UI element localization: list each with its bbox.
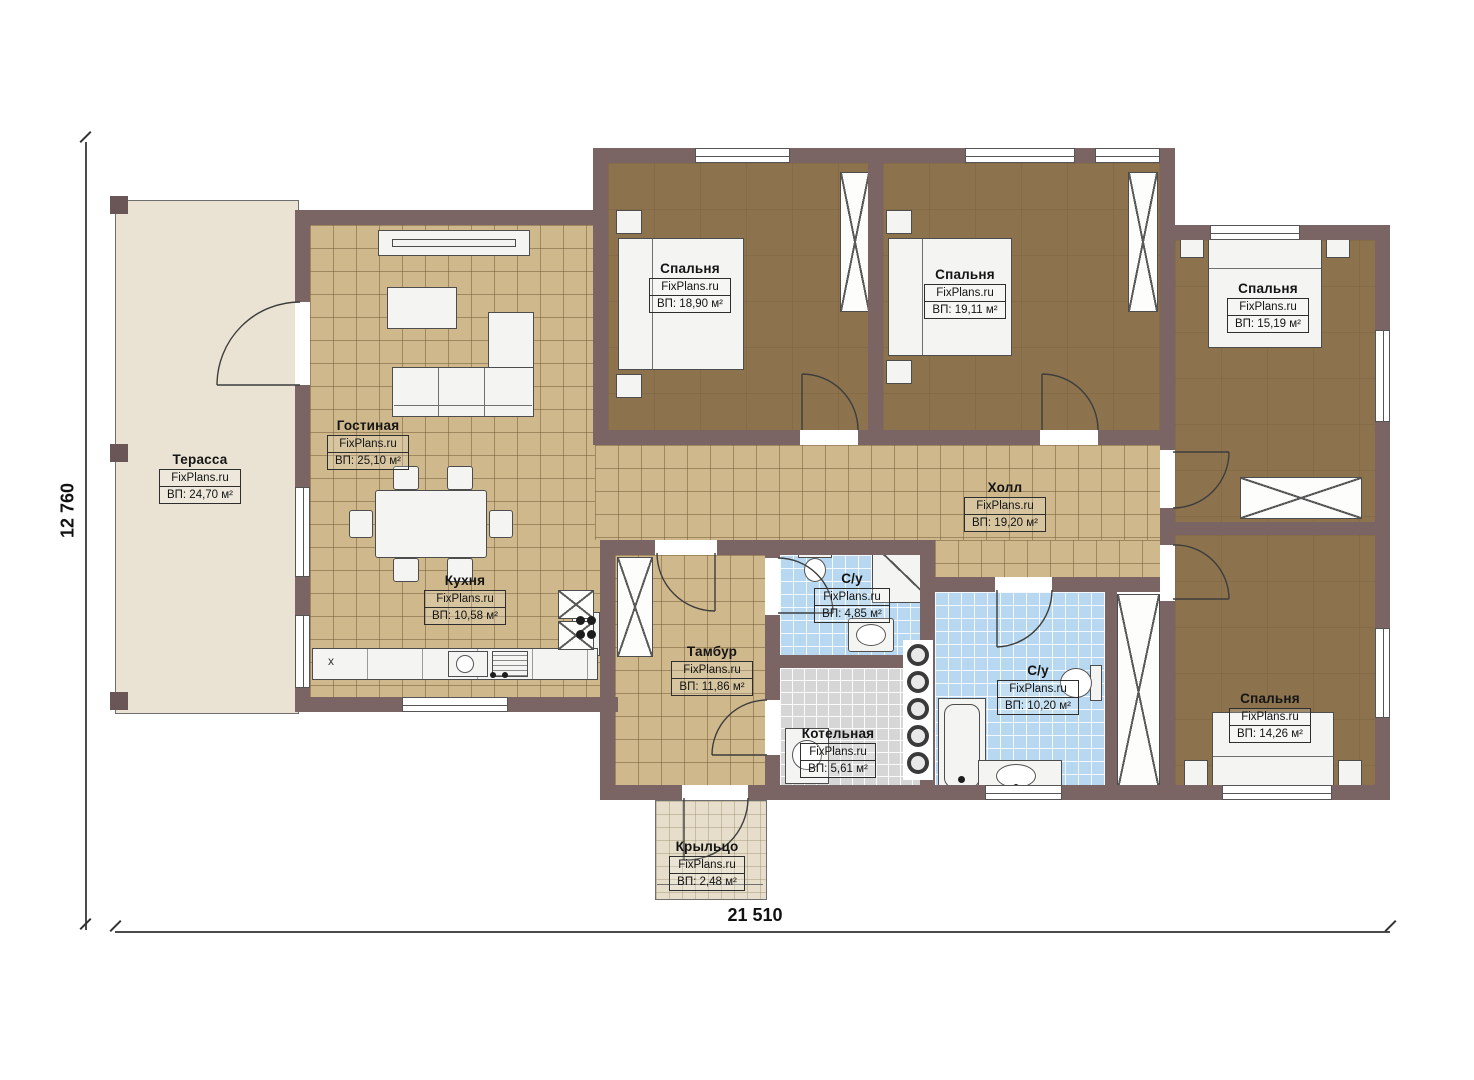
bathtub-drain: [958, 776, 965, 783]
room-info-box: FixPlans.ru ВП: 11,86 м²: [671, 661, 752, 696]
window: [965, 148, 1075, 163]
room-area: ВП: 19,20 м²: [965, 515, 1045, 531]
dining-chair: [489, 510, 513, 538]
room-info-box: FixPlans.ru ВП: 4,85 м²: [814, 588, 890, 623]
wall: [295, 210, 608, 225]
sink-drainer: [492, 651, 528, 677]
window: [402, 697, 508, 712]
watermark: FixPlans.ru: [815, 589, 889, 606]
room-area: ВП: 10,58 м²: [425, 608, 505, 624]
blanket-line: [1213, 756, 1333, 757]
room-label-boiler: Котельная FixPlans.ru ВП: 5,61 м²: [783, 726, 893, 778]
room-area: ВП: 19,11 м²: [925, 302, 1004, 318]
tv: [392, 239, 516, 247]
door-opening-terrace: [295, 302, 310, 385]
nightstand: [886, 360, 912, 384]
dining-chair: [447, 466, 473, 490]
hob-mark: x: [328, 654, 334, 668]
room-info-box: FixPlans.ru ВП: 19,11 м²: [924, 284, 1005, 319]
nightstand: [886, 210, 912, 234]
faucet-dot: [502, 672, 508, 678]
room-label-wc1: С/у FixPlans.ru ВП: 4,85 м²: [797, 571, 907, 623]
room-name: Спальня: [635, 261, 745, 276]
room-area: ВП: 18,90 м²: [650, 296, 730, 312]
window: [1210, 225, 1300, 240]
room-info-box: FixPlans.ru ВП: 18,90 м²: [649, 278, 731, 313]
kitchen-fridge: [558, 590, 594, 619]
room-area: ВП: 15,19 м²: [1228, 316, 1308, 332]
sofa-base-line: [394, 405, 532, 406]
room-info-box: FixPlans.ru ВП: 2,48 м²: [669, 856, 745, 891]
collector-ring: [907, 698, 929, 720]
burner: [587, 616, 596, 625]
watermark: FixPlans.ru: [998, 681, 1078, 698]
room-info-box: FixPlans.ru ВП: 25,10 м²: [327, 435, 409, 470]
hall-floor: [595, 445, 1160, 540]
nightstand: [616, 374, 642, 398]
collector-ring: [907, 671, 929, 693]
dining-table: [375, 490, 487, 558]
door-opening-bedroom1: [800, 430, 858, 445]
collector-ring: [907, 725, 929, 747]
room-name: Холл: [950, 480, 1060, 495]
room-name: Крыльцо: [652, 839, 762, 854]
blanket-line: [1209, 268, 1321, 269]
door-opening-tambur: [655, 540, 717, 555]
room-label-terrace: Терасса FixPlans.ru ВП: 24,70 м²: [145, 452, 255, 504]
nightstand: [616, 210, 642, 234]
watermark: FixPlans.ru: [425, 591, 505, 608]
watermark: FixPlans.ru: [328, 436, 408, 453]
nightstand: [1184, 760, 1208, 786]
room-info-box: FixPlans.ru ВП: 24,70 м²: [159, 469, 241, 504]
dimension-width-label: 21 510: [690, 905, 820, 926]
burner: [576, 630, 585, 639]
window: [1375, 330, 1390, 422]
dimension-height-label: 12 760: [58, 466, 79, 556]
wall: [868, 163, 883, 432]
wall: [1105, 592, 1117, 790]
room-area: ВП: 11,86 м²: [672, 679, 751, 695]
watermark: FixPlans.ru: [672, 662, 751, 679]
room-name: Тамбур: [657, 644, 767, 659]
room-label-porch: Крыльцо FixPlans.ru ВП: 2,48 м²: [652, 839, 762, 891]
sofa-seat: [392, 367, 534, 417]
watermark: FixPlans.ru: [1230, 709, 1310, 726]
room-name: Терасса: [145, 452, 255, 467]
door-opening-bedroom2: [1040, 430, 1098, 445]
room-label-wc2: С/у FixPlans.ru ВП: 10,20 м²: [983, 663, 1093, 715]
window: [695, 148, 790, 163]
room-info-box: FixPlans.ru ВП: 10,20 м²: [997, 680, 1079, 715]
room-label-bedroom4: Спальня FixPlans.ru ВП: 14,26 м²: [1215, 691, 1325, 743]
door-opening-wc1: [765, 558, 780, 615]
collector-ring: [907, 752, 929, 774]
collector-ring: [907, 644, 929, 666]
watermark: FixPlans.ru: [801, 744, 875, 761]
window: [1375, 628, 1390, 718]
door-opening-wc2: [995, 577, 1052, 592]
room-name: Спальня: [910, 267, 1020, 282]
room-name: Гостиная: [313, 418, 423, 433]
room-area: ВП: 14,26 м²: [1230, 726, 1310, 742]
watermark: FixPlans.ru: [670, 857, 744, 874]
tambur-closet: [617, 557, 653, 657]
room-info-box: FixPlans.ru ВП: 19,20 м²: [964, 497, 1046, 532]
room-area: ВП: 24,70 м²: [160, 487, 240, 503]
room-info-box: FixPlans.ru ВП: 5,61 м²: [800, 743, 876, 778]
room-name: Спальня: [1213, 281, 1323, 296]
washbasin-bowl: [856, 624, 886, 646]
dimension-line-bottom: [115, 931, 1390, 933]
sofa-cushion-line: [438, 368, 439, 416]
room-label-bedroom2: Спальня FixPlans.ru ВП: 19,11 м²: [910, 267, 1020, 319]
room-info-box: FixPlans.ru ВП: 10,58 м²: [424, 590, 506, 625]
room-label-hall: Холл FixPlans.ru ВП: 19,20 м²: [950, 480, 1060, 532]
faucet-dot: [490, 672, 496, 678]
watermark: FixPlans.ru: [965, 498, 1045, 515]
room-area: ВП: 4,85 м²: [815, 606, 889, 622]
wall: [593, 148, 608, 445]
window: [1222, 785, 1332, 800]
room-label-tambur: Тамбур FixPlans.ru ВП: 11,86 м²: [657, 644, 767, 696]
room-info-box: FixPlans.ru ВП: 15,19 м²: [1227, 298, 1309, 333]
wall: [593, 148, 1175, 163]
door-opening-bedroom3: [1160, 450, 1175, 508]
burner: [576, 616, 585, 625]
room-name: С/у: [797, 571, 907, 586]
sofa-cushion-line: [484, 368, 485, 416]
window: [295, 487, 310, 577]
watermark: FixPlans.ru: [925, 285, 1004, 302]
watermark: FixPlans.ru: [1228, 299, 1308, 316]
wardrobe: [840, 172, 870, 312]
room-label-kitchen: Кухня FixPlans.ru ВП: 10,58 м²: [410, 573, 520, 625]
coffee-table: [387, 287, 457, 329]
terrace-post: [110, 444, 128, 462]
built-in-closet: [1117, 594, 1160, 790]
room-name: Спальня: [1215, 691, 1325, 706]
nightstand: [1338, 760, 1362, 786]
room-name: Котельная: [783, 726, 893, 741]
terrace-post: [110, 196, 128, 214]
room-info-box: FixPlans.ru ВП: 14,26 м²: [1229, 708, 1311, 743]
room-area: ВП: 10,20 м²: [998, 698, 1078, 714]
door-opening-entrance: [682, 785, 748, 800]
dining-chair: [349, 510, 373, 538]
room-name: Кухня: [410, 573, 520, 588]
room-label-bedroom1: Спальня FixPlans.ru ВП: 18,90 м²: [635, 261, 745, 313]
terrace-post: [110, 692, 128, 710]
window: [985, 785, 1062, 800]
floor-plan: x: [0, 0, 1474, 1080]
room-name: С/у: [983, 663, 1093, 678]
watermark: FixPlans.ru: [160, 470, 240, 487]
dimension-tick: [1384, 920, 1396, 932]
room-area: ВП: 25,10 м²: [328, 453, 408, 469]
dimension-line-left: [85, 142, 87, 930]
wall: [600, 540, 615, 800]
room-label-bedroom3: Спальня FixPlans.ru ВП: 15,19 м²: [1213, 281, 1323, 333]
room-label-living: Гостиная FixPlans.ru ВП: 25,10 м²: [313, 418, 423, 470]
burner: [587, 630, 596, 639]
door-opening-bedroom4: [1160, 545, 1175, 601]
door-opening-boiler: [765, 700, 780, 755]
sink-bowl: [456, 655, 474, 673]
room-area: ВП: 2,48 м²: [670, 874, 744, 890]
wardrobe: [1128, 172, 1158, 312]
window: [295, 615, 310, 688]
room-area: ВП: 5,61 м²: [801, 761, 875, 777]
window: [1095, 148, 1160, 163]
wardrobe: [1240, 477, 1362, 519]
watermark: FixPlans.ru: [650, 279, 730, 296]
wall: [1175, 522, 1375, 535]
